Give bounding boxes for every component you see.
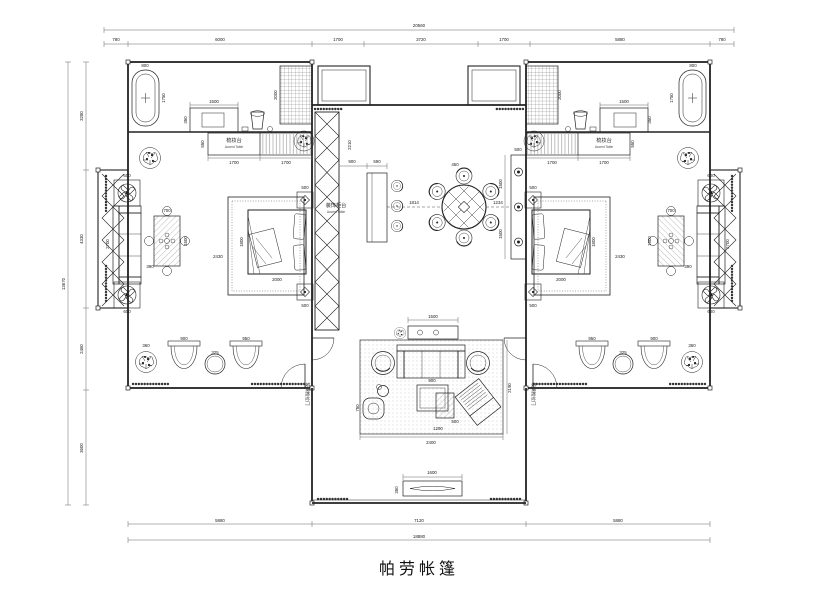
dim-label: 500 [451,419,459,424]
dim-label: 1700 [333,37,343,42]
dim-label: 1750 [161,93,166,103]
dim-label: 1500 [428,314,438,319]
dim-label: 500 [529,185,537,190]
dim-label: 5880 [215,518,225,523]
room-label: Accent Table [595,145,613,149]
dim-label: 2000 [557,90,562,100]
central-hall [312,105,526,330]
dining-chair [426,212,448,234]
dim-label: 1800 [591,237,596,247]
dim-label: 350 [183,116,188,124]
dim-label: 2700 [105,239,110,249]
dim-label: 3720 [416,37,426,42]
deck-round-table [205,354,225,374]
dim-label: 390 [146,264,154,269]
dim-label: 7120 [414,518,424,523]
wardrobe [280,66,312,124]
dim-label: 1700 [229,160,239,165]
dim-label: 750 [355,404,360,412]
dim-label: 800 [689,63,697,68]
dim-label: 1750 [669,93,674,103]
right-wing [468,60,742,505]
dim-label: 13670 [61,277,66,290]
dim-label: 600 [123,309,131,314]
room-label: 梳妆台 [596,136,612,144]
dim-label: 1500 [647,236,652,246]
dim-label: 360 [142,343,150,348]
dim-label: 450 [451,162,459,167]
dim-label: 350 [647,116,652,124]
plant [136,352,157,373]
sofa-console [408,317,458,339]
dim-label: 390 [684,264,692,269]
dim-label: 500 [529,303,537,308]
dim-label: 1500 [498,179,503,189]
bar-stool [391,200,403,212]
dim-label: 5880 [613,518,623,523]
dim-label: 780 [112,37,120,42]
dim-label: 900 [650,336,658,341]
dim-label: 2190 [507,383,512,393]
dim-label: 1814 [409,200,419,205]
dim-label: 900 [180,336,188,341]
dim-label: 2000 [272,277,282,282]
dining-chair [456,230,472,246]
dim-label: 1234 [493,200,503,205]
dim-label: 4330 [79,234,84,244]
dim-label: 6000 [215,37,225,42]
dim-label: 1800 [239,237,244,247]
dim-label: 1500 [209,99,219,104]
corridor-note: 玻璃推拉门 [304,383,311,406]
dim-label: 18880 [413,534,426,539]
bar-counter [367,173,387,242]
dim-label: 1700 [499,37,509,42]
dim-label: 350 [394,486,399,494]
room-label: 梳妆台 [226,136,242,144]
room-label: 装饰柜台 [326,201,347,209]
dim-label: 360 [688,343,696,348]
room-label: Accent Table [327,210,345,214]
room-label: Accent Table [225,145,243,149]
dim-label: 550 [200,140,205,148]
dim-label: 325 [211,350,219,355]
dim-label: 700 [163,208,171,213]
dim-label: 550 [630,140,635,148]
dim-label: 20560 [413,23,426,28]
dim-label: 590 [373,159,381,164]
plant [140,148,161,169]
terrace-bench [403,474,462,496]
vanity-stool [251,111,265,129]
dim-label: 3280 [79,111,84,121]
dim-label: 2430 [213,254,223,259]
dim-label: 900 [348,159,356,164]
fan-side-table [114,282,140,308]
bar-stool [391,180,403,192]
entry-planter-box [318,66,370,105]
dim-label: 2430 [615,254,625,259]
text-labels: 20560 780 6000 1700 3720 1700 5880 780 1… [61,23,730,578]
dim-label: 500 [514,147,522,152]
floor-plan-canvas: 20560 780 6000 1700 3720 1700 5880 780 1… [0,0,837,592]
dining-chair [456,168,472,184]
left-wing [96,60,370,505]
nightstand [297,192,313,208]
dim-label: 950 [588,336,596,341]
dim-label: 325 [619,350,627,355]
bathtub [132,70,159,126]
dim-label: 2000 [273,90,278,100]
floor-plan-sheet: 20560 780 6000 1700 3720 1700 5880 780 1… [0,0,837,592]
drawing-title: 帕劳帐篷 [379,559,459,578]
vanity-desk [190,102,238,132]
dim-label: 3600 [79,443,84,453]
dim-label: 600 [707,309,715,314]
deck-lounge-chair [168,341,200,369]
plant [394,327,406,339]
dim-label: 2460 [79,344,84,354]
dim-label: 2210 [347,140,352,150]
corridor-door [312,338,334,360]
dim-label: 1700 [281,160,291,165]
dim-label: 2400 [426,440,436,445]
dim-label: 1500 [183,236,188,246]
dim-label: 950 [242,336,250,341]
dim-label: 1700 [547,160,557,165]
dim-label: 1290 [433,426,443,431]
dim-label: 5880 [615,37,625,42]
dim-label: 1500 [498,229,503,239]
porch-sofa [113,206,141,284]
dim-label: 900 [428,378,436,383]
dim-label: 500 [301,303,309,308]
dim-label: 1700 [599,160,609,165]
dim-label: 700 [667,208,675,213]
dim-label: 1600 [427,470,437,475]
dining-chair [426,181,448,203]
corridor-note: 玻璃推拉门 [530,383,537,406]
dim-label: 800 [141,63,149,68]
deck-lounge-chair [230,341,262,369]
lattice-screen [315,112,339,330]
dim-label: 780 [718,37,726,42]
dim-label: 2000 [556,277,566,282]
dim-label: 600 [123,173,131,178]
dim-label: 500 [301,185,309,190]
bar-stool [391,220,403,232]
dim-label: 2700 [725,239,730,249]
dim-label: 1500 [619,99,629,104]
dim-label: 600 [707,173,715,178]
nightstand [297,284,313,300]
